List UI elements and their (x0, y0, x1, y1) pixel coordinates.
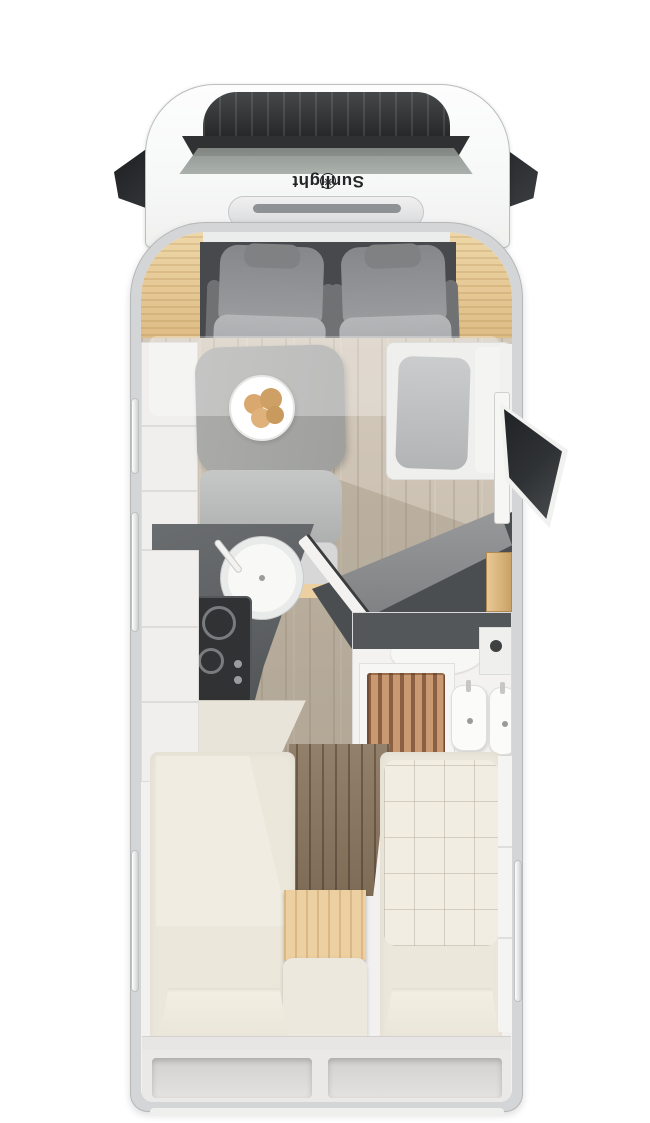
side-window (514, 860, 522, 1002)
rear-garage (142, 1050, 511, 1102)
tall-cabinet (141, 550, 199, 782)
basin-tap (500, 682, 505, 694)
duvet (156, 756, 289, 926)
hood-vent-slot (253, 204, 401, 213)
washbasin (489, 687, 512, 755)
brand-logo: Sunlight ✳ (240, 168, 416, 194)
entry-door-open (494, 392, 570, 534)
plate-with-bread (229, 375, 295, 441)
ground-shadow (150, 1108, 504, 1116)
quilted-blanket (384, 760, 498, 946)
wood-cabinet (486, 552, 512, 612)
side-bench-cushion (395, 356, 471, 470)
hob-knob (234, 676, 242, 684)
bread-roll (266, 406, 284, 424)
side-window (131, 512, 139, 632)
side-window (131, 850, 139, 992)
side-window (131, 398, 139, 474)
garage-compartment (328, 1058, 502, 1098)
bed-step-wood (284, 890, 366, 960)
burner (202, 606, 236, 640)
headrest (244, 243, 301, 269)
latch-handle-icon (372, 1038, 408, 1050)
brand-logo-mark-icon: ✳ (320, 173, 336, 189)
vanity-sink (490, 640, 502, 652)
latch-handle-icon (222, 1038, 258, 1050)
garage-compartment (152, 1058, 312, 1098)
hob-knob (234, 660, 242, 668)
headrest (364, 243, 421, 269)
basin-tap (466, 680, 471, 692)
bedroom-shelf-column (498, 756, 512, 1032)
sink-drain (259, 575, 265, 581)
vanity-cabinet (479, 627, 512, 675)
motorhome-floorplan: Sunlight ✳ (0, 0, 650, 1123)
burner (198, 648, 224, 674)
basin-drain (502, 721, 508, 727)
basin-drain (467, 718, 473, 724)
interior (141, 232, 512, 1102)
washbasin (451, 685, 487, 751)
